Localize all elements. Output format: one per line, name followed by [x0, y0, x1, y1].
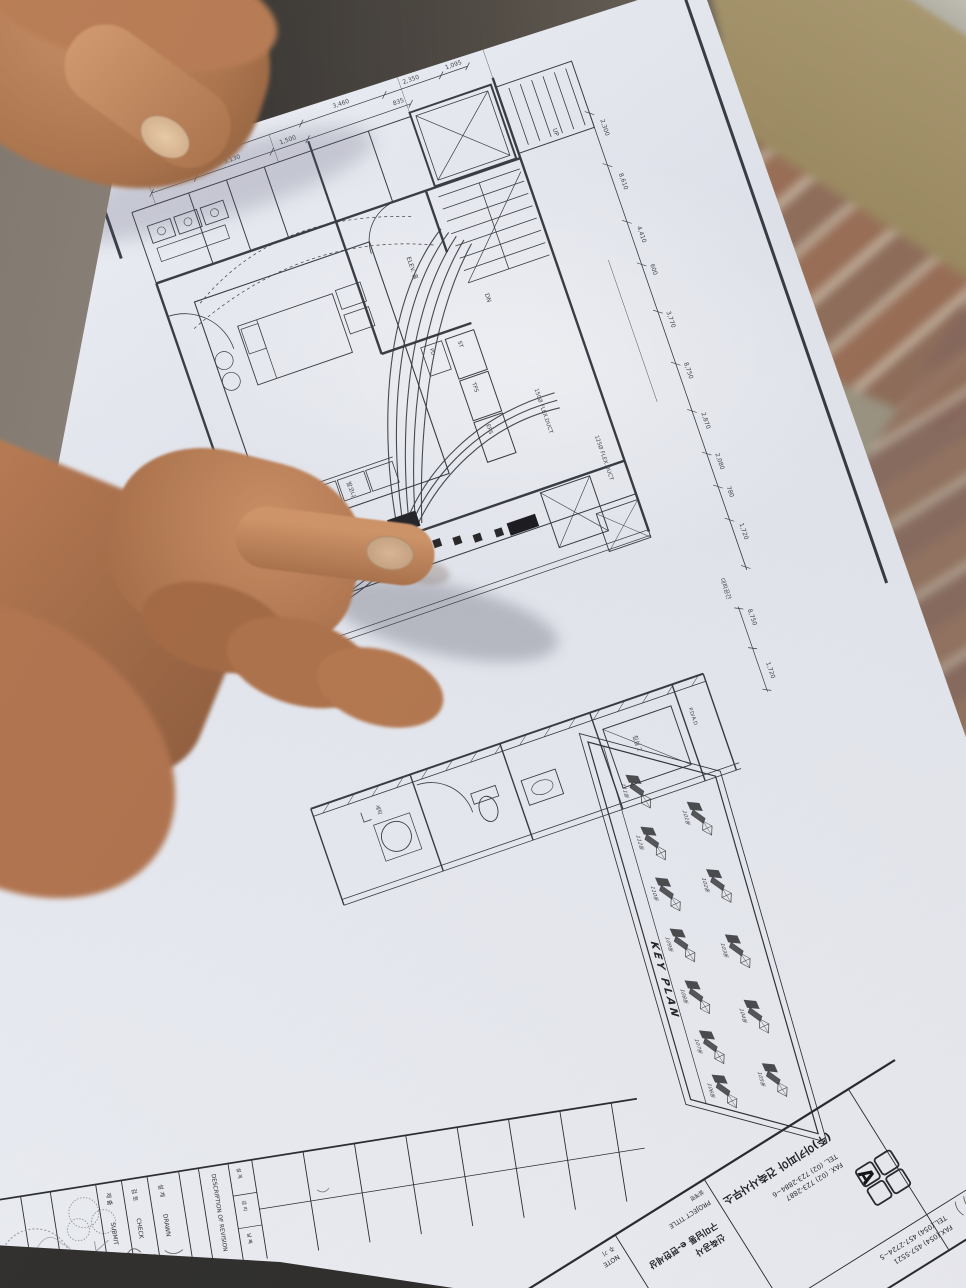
submit-label-kr: 제 출 [104, 1192, 114, 1207]
room-label: ST [456, 340, 464, 349]
dim-label: 8,610 [617, 172, 629, 191]
right-dim-chain [560, 109, 750, 580]
key-plan: KEY PLAN 101동 102동 103동 104동 105동 [579, 733, 827, 1142]
dim-label: 2,350 [402, 74, 421, 86]
building-label: 111동 [619, 782, 630, 799]
building-label: 112동 [634, 834, 645, 851]
revision-col-label: 날 짜 [245, 1233, 254, 1245]
building-label: 109동 [663, 936, 674, 953]
building-label: 107동 [693, 1038, 704, 1055]
revision-col-label: 감 리 [240, 1200, 249, 1212]
duct-label: 125Ø FLEX.DUCT [593, 434, 615, 482]
submit-label-en: SUBMIT [109, 1222, 120, 1246]
room-label: DN [483, 292, 493, 303]
room-label: 세탁 [373, 804, 384, 816]
check-label-kr: 검 토 [130, 1188, 139, 1202]
building-label: 110동 [649, 885, 660, 902]
building-label: 108동 [678, 988, 689, 1005]
room-label: P.D/A.D [687, 707, 699, 726]
room-label: TPS [470, 381, 479, 394]
photo-of-blueprint: ELEV. 홀 DN UP ST TPS EPS PD 발코니 난방전용배선 1… [0, 0, 966, 1288]
dim-label: 835 [392, 97, 405, 107]
dim-label: 8,750 [682, 361, 694, 380]
project-title-label-kr: 설계명 [689, 1188, 706, 1203]
dim-label: 4,410 [635, 225, 647, 244]
title-block: A (주)아키피아 건축사사무소 TEL. (02) 723-2884~6 FA… [496, 1060, 966, 1288]
dim-label: 2,300 [598, 118, 610, 137]
drawn-label-kr: 설 계 [156, 1184, 166, 1198]
revision-label: DESCRIPTION OF REVISION [209, 1174, 227, 1252]
room-label: UP [551, 127, 560, 137]
dim-label: 3,460 [332, 98, 351, 110]
drawn-label-en: DRAWN [161, 1214, 171, 1238]
room-label: 대피공간 [718, 577, 733, 601]
building-label: 104동 [737, 1007, 748, 1024]
revision-col-label: 설 계 [235, 1167, 244, 1179]
dim-label: 3,770 [665, 310, 677, 329]
building-label: 106동 [705, 1082, 716, 1099]
room-label: ELEV. 홀 [405, 256, 420, 281]
dim-label: 1,720 [764, 661, 776, 680]
building-label: 103동 [719, 942, 730, 959]
room-label: 발코니 [345, 480, 358, 498]
dim-label: 2,870 [699, 411, 711, 430]
dim-label: 1,720 [737, 522, 749, 541]
company-logo-icon: A [851, 1149, 911, 1208]
duct-label: 150Ø FLEX.DUCT [532, 387, 554, 435]
core-stair [439, 169, 550, 283]
building-label: 101동 [680, 809, 691, 826]
dim-label: 8,750 [746, 608, 758, 627]
check-label-en: CHECK [134, 1218, 144, 1241]
building-label: 102동 [700, 877, 711, 894]
dim-label: 2,080 [713, 452, 725, 471]
key-plan-buildings [618, 768, 803, 1126]
dim-label: 600 [648, 263, 658, 276]
building-label: 105동 [756, 1071, 767, 1088]
dim-label: 780 [725, 485, 735, 498]
